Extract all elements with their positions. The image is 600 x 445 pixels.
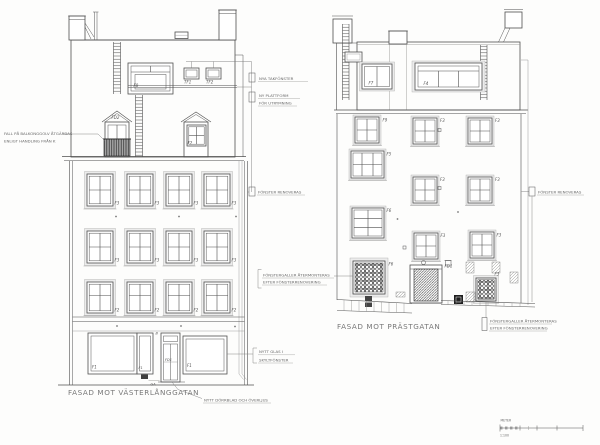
left-vent-pipe [85, 12, 99, 40]
annotation-balcony: FALL PÅ BALKONGGOLV ÅTGÄRDAS ENLIGT HAND… [4, 131, 105, 144]
window-label: F2 [155, 308, 160, 313]
annotation-text: ENLIGT HANDLING FRÅN K [4, 139, 56, 144]
facade-drawing-sheet: F8 TF1 TF2 FD2 F2 [0, 0, 600, 445]
gate-label-ga: GA [151, 383, 157, 387]
window-f3 [465, 116, 495, 147]
window-label: F3 [194, 258, 199, 263]
annotation-text: FÖNSTERGALLER ÅTERMONTERAS [263, 273, 330, 278]
window-grille-f3 [474, 276, 499, 304]
window-f2 [201, 280, 234, 316]
window-f3 [163, 229, 196, 267]
window-label: F3 [232, 201, 237, 206]
annotation-shop-glass: NYTT GLAS I SKYLTFÖNSTER [227, 348, 295, 363]
window-label-f1: F1 [139, 366, 143, 370]
window-f2 [163, 280, 196, 316]
window-f6 [349, 206, 387, 241]
annotation-windows-renovate-right: FÖNSTER RENOVERAS [522, 187, 585, 302]
window-label: F3 [440, 177, 445, 182]
roof-ladder-lower [136, 95, 143, 157]
right-roof-vent-box [345, 52, 362, 62]
window-label: F3 [495, 118, 500, 123]
window-label: F3 [115, 201, 120, 206]
annotation-text: NYTT GLAS I [259, 349, 283, 354]
annotation-text: SKYLTFÖNSTER [259, 358, 289, 363]
annotation-grille-left: FÖNSTERGALLER ÅTERMONTERAS EFTER FÖNSTER… [258, 270, 353, 289]
window-f3 [163, 172, 196, 210]
left-roof-wall [71, 40, 235, 157]
annotation-text: FÖNSTERGALLER ÅTERMONTERAS [490, 319, 557, 324]
window-f3 [410, 116, 440, 147]
window-label: F3 [497, 233, 502, 238]
roof-ladder-upper [114, 42, 121, 94]
cellar-vent [141, 375, 148, 380]
entrance-door-right [410, 265, 442, 303]
window-label: F3 [155, 201, 160, 206]
cellar-vent [365, 296, 372, 301]
window-f5 [348, 149, 387, 181]
window-f4 [412, 61, 485, 92]
window-label-f4: F4 [424, 81, 429, 86]
window-label: F3 [232, 258, 237, 263]
left-roof-vent [175, 32, 188, 39]
window-label-f2-dormer: F2 [188, 141, 193, 146]
annotation-text: NY PLATTFORM [259, 93, 289, 98]
annotation-text: EFTER FÖNSTERRENOVERING [490, 326, 548, 331]
window-label: F3 [155, 258, 160, 263]
annotation-text: FÖNSTER RENOVERAS [538, 190, 582, 195]
annotation-text: FALL PÅ BALKONGGOLV ÅTGÄRDAS [4, 131, 73, 136]
window-label: F2 [194, 308, 199, 313]
window-f3 [465, 175, 495, 206]
downpipe [239, 161, 247, 380]
window-label-f1: F1 [187, 363, 192, 368]
window-label: F3 [441, 233, 446, 238]
window-f3 [411, 231, 441, 262]
annotation-text: NYA TAKFÖNSTER [259, 76, 294, 81]
left-chimney-2 [218, 10, 237, 40]
window-label: F3 [115, 258, 120, 263]
scale-ratio-label: 1:100 [500, 434, 509, 438]
window-label-f6: F6 [387, 208, 392, 213]
shopfront-3 [183, 336, 227, 374]
annotation-windows-renovate-left: FÖNSTER RENOVERAS [249, 187, 305, 196]
window-f7 [360, 62, 395, 91]
window-f3 [84, 229, 117, 267]
left-elevation: F8 TF1 TF2 FD2 F2 [58, 10, 254, 397]
window-tf1 [184, 68, 199, 79]
window-f3 [201, 229, 234, 267]
window-f3 [467, 230, 497, 261]
left-elevation-title: FASAD MOT VÄSTERLÅNGGATAN [68, 388, 199, 397]
window-label: F3 [194, 201, 199, 206]
window-label-tf1: TF1 [184, 80, 191, 85]
window-f3 [201, 172, 234, 210]
window-label-f7: F7 [369, 81, 374, 86]
window-label: F3 [440, 118, 445, 123]
window-label-fd1: FD1 [165, 358, 172, 362]
cellar-hatch [454, 295, 463, 304]
window-f3 [84, 172, 117, 210]
annotation-text: NYTT DÖRRBLAD OCH ÖVERLJUS [204, 398, 268, 403]
elevation-drawing: F8 TF1 TF2 FD2 F2 [0, 0, 600, 445]
annotation-text: FÖR UTRYMNING [259, 101, 292, 106]
cellar-vent [365, 303, 372, 308]
right-elevation-title: FASAD MOT PRÄSTGATAN [337, 322, 440, 331]
window-f8 [128, 63, 173, 94]
door-letter-label: B [156, 332, 159, 336]
window-label-fd2: FD2 [112, 115, 120, 120]
window-label-f5: F5 [387, 152, 392, 157]
window-f3 [124, 172, 157, 210]
annotation-grille-right: FÖNSTERGALLER ÅTERMONTERAS EFTER FÖNSTER… [482, 301, 557, 331]
right-elevation: F7 F4 F9 F3 F3 F5 F3 F3 F6 F3 F3 F6 F3 F… [332, 10, 535, 332]
window-f9 [352, 115, 382, 146]
window-label-f9: F9 [383, 118, 388, 123]
annotation-text: EFTER FÖNSTERRENOVERING [263, 280, 321, 285]
left-chimney-1 [68, 16, 86, 40]
window-label-f1: F1 [92, 365, 97, 370]
window-f3 [124, 229, 157, 267]
right-chimney-right [499, 10, 524, 43]
window-tf2 [206, 68, 221, 79]
window-label: F3 [495, 177, 500, 182]
window-f3 [410, 175, 440, 206]
window-grille-f6 [350, 258, 388, 297]
annotation-platform: NY PLATTFORM FÖR UTRYMNING [249, 92, 300, 106]
window-f2 [124, 280, 157, 316]
window-label-grille-f6: F6 [389, 262, 394, 267]
scale-bar: METER 1:100 [500, 419, 583, 438]
window-f2 [84, 280, 117, 316]
annotation-roof-windows: NYA TAKFÖNSTER [249, 73, 308, 82]
window-label: F2 [232, 308, 237, 313]
annotation-text: FÖNSTER RENOVERAS [258, 190, 302, 195]
window-label-tf2: TF2 [206, 80, 214, 85]
window-label: F2 [115, 308, 120, 313]
scale-unit-label: METER [501, 419, 512, 423]
